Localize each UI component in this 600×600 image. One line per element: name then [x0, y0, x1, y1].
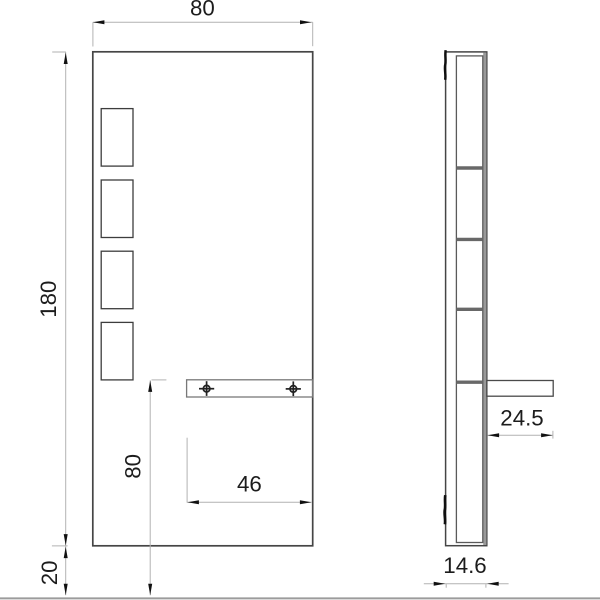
- svg-text:14.6: 14.6: [443, 553, 486, 578]
- svg-text:46: 46: [237, 472, 262, 497]
- svg-text:20: 20: [37, 560, 62, 585]
- svg-text:80: 80: [120, 454, 145, 479]
- svg-text:180: 180: [36, 281, 61, 318]
- svg-text:24.5: 24.5: [500, 406, 543, 431]
- svg-text:80: 80: [190, 0, 215, 21]
